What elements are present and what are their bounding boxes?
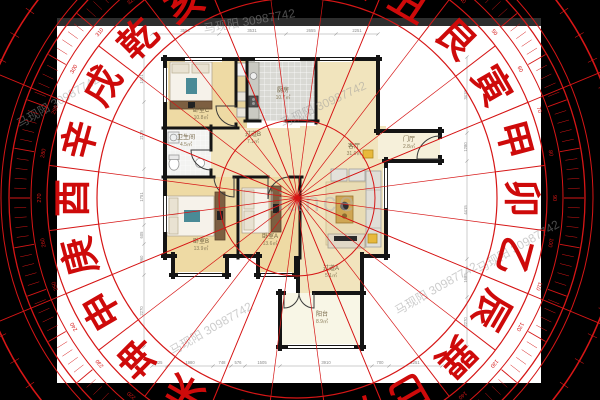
room-name-label: 卫生间 [177, 133, 195, 141]
dim-bottom: 576 [235, 360, 243, 365]
dim-left: 1751 [139, 192, 144, 202]
room-area-label: 7.1㎡ [247, 138, 259, 145]
room-name-label: 门厅 [403, 135, 415, 143]
dim-bottom: 1505 [257, 360, 267, 365]
degree-label: 270 [37, 193, 43, 202]
room-name-label: 客厅 [348, 142, 360, 150]
room-area-label: 13.9㎡ [194, 245, 209, 252]
room-area-label: 5.1㎡ [325, 272, 337, 279]
room-area-label: 8.9㎡ [316, 318, 328, 325]
room-area-label: 10.7㎡ [276, 94, 291, 101]
degree-label: 90 [551, 195, 557, 201]
dim-left: 605 [139, 231, 144, 239]
dim-top: 3531 [247, 28, 257, 33]
dim-top: 2655 [306, 28, 316, 33]
room-name-label: 卧室C [193, 106, 210, 114]
dim-bottom: 700 [377, 360, 385, 365]
room-name-label: 阳台 [316, 310, 328, 318]
room-area-label: 13.6㎡ [263, 240, 278, 247]
dim-top: 2251 [352, 28, 362, 33]
dim-bottom: 748 [219, 360, 227, 365]
dim-left: 2270 [139, 306, 144, 316]
dim-right: 1280 [463, 142, 468, 152]
mountain-char: 酉 [49, 179, 94, 217]
fengshui-floorplan-image: 3554353126552251625198074857615053910700… [0, 0, 600, 400]
dim-right: 4415 [463, 205, 468, 215]
mountain-char: 卯 [500, 179, 545, 217]
room-area-label: 2.8㎡ [403, 143, 415, 150]
dim-bottom: 3910 [321, 360, 331, 365]
room-area-label: 4.5㎡ [180, 141, 192, 148]
degree-label: 80 [547, 150, 554, 157]
